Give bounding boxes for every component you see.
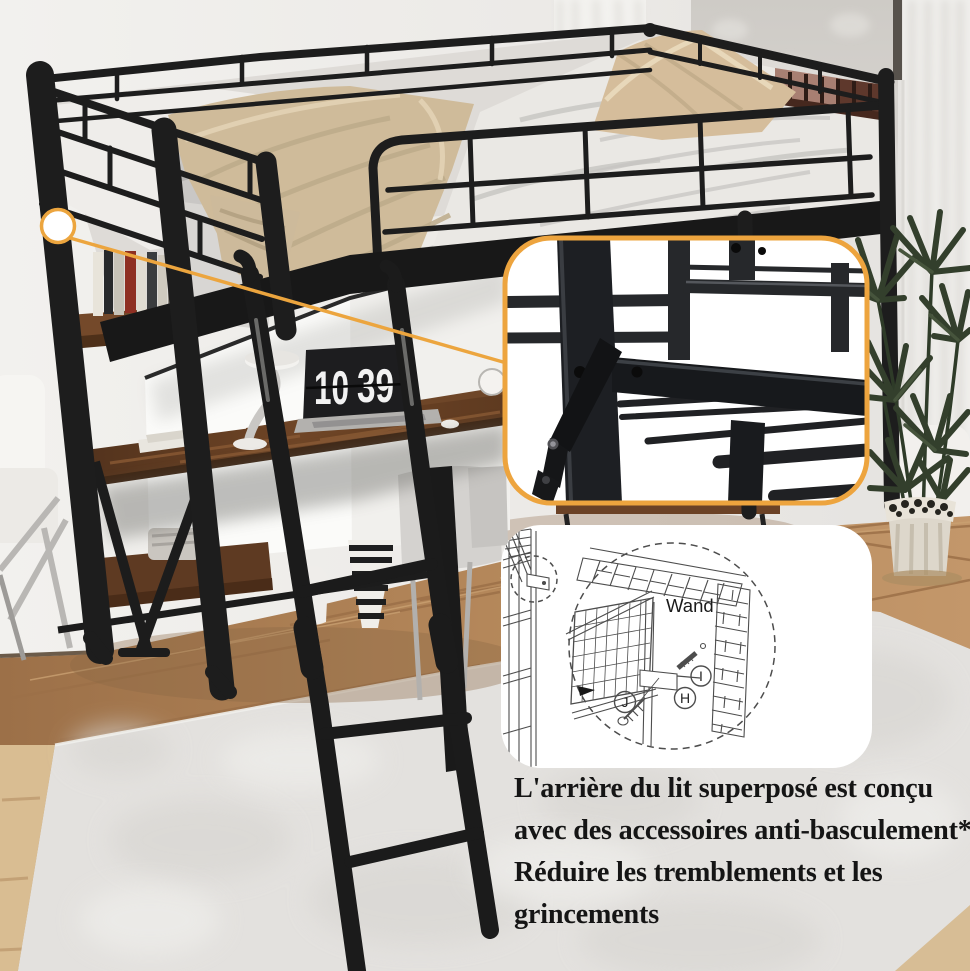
svg-text:Wand: Wand bbox=[666, 595, 714, 616]
svg-text:H: H bbox=[680, 690, 690, 706]
svg-text:J: J bbox=[622, 694, 629, 710]
svg-text:grincements: grincements bbox=[514, 899, 659, 930]
svg-text:avec des accessoires anti-basc: avec des accessoires anti-basculement*1 bbox=[514, 815, 970, 846]
svg-text:L'arrière du lit superposé est: L'arrière du lit superposé est conçu bbox=[514, 773, 933, 804]
svg-text:I: I bbox=[699, 668, 703, 684]
svg-text:Réduire les tremblements et le: Réduire les tremblements et les bbox=[514, 857, 883, 888]
